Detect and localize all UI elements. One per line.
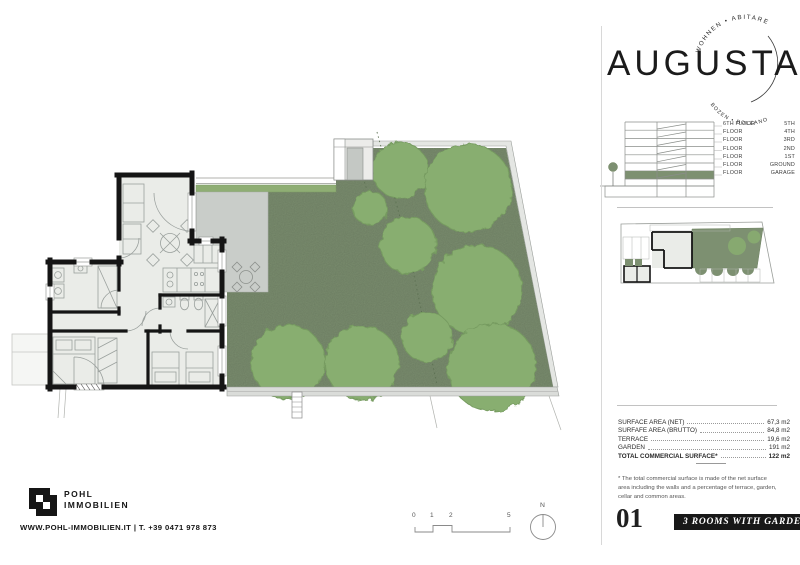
north-label: N (540, 502, 545, 509)
agency-contact: WWW.POHL-IMMOBILIEN.IT | T. +39 0471 978… (20, 523, 217, 532)
hedge-strip (196, 178, 336, 192)
area-footnote: * The total commercial surface is made o… (618, 475, 780, 502)
scale-tick-0: 0 (412, 512, 416, 519)
floor-row: FLOOR2ND (723, 145, 795, 153)
floor-row: FLOOR4TH (723, 128, 795, 136)
area-total-row: TOTAL COMMERCIAL SURFACE*122 m2 (618, 451, 790, 460)
scale-bar (415, 526, 510, 533)
agency-name: POHL IMMOBILIEN (64, 489, 129, 511)
unit-type-badge: 3 ROOMS WITH GARDEN (674, 514, 800, 530)
floor-row: FLOORGROUND (723, 161, 795, 169)
floor-row: FLOOR1ST (723, 153, 795, 161)
floor-row: 6TH FLOOR5TH (723, 120, 795, 128)
apartment (12, 173, 226, 390)
entry-threshold (74, 384, 104, 390)
area-row: SURFAFE AREA (BRUTTO)84,8 m2 (618, 426, 790, 435)
separator-1 (617, 207, 773, 208)
scale-tick-2: 2 (449, 512, 453, 519)
area-row: TERRACE19,6 m2 (618, 434, 790, 443)
building-section-diagram (600, 122, 722, 197)
table-underline (696, 463, 726, 464)
garden-shed (334, 139, 373, 180)
separator-2 (617, 405, 777, 406)
scale-tick-1: 1 (430, 512, 434, 519)
panel-divider (601, 26, 602, 545)
area-row: GARDEN191 m2 (618, 443, 790, 452)
pohl-logo-mosaic (29, 488, 57, 516)
floor-row: FLOOR3RD (723, 136, 795, 144)
logo-wordmark: AUGUSTA (607, 44, 799, 84)
floor-list: 6TH FLOOR5TH FLOOR4TH FLOOR3RD FLOOR2ND … (723, 120, 795, 177)
area-row: SURFACE AREA (NET)67,3 m2 (618, 417, 790, 426)
surface-area-table: SURFACE AREA (NET)67,3 m2 SURFAFE AREA (… (618, 417, 790, 502)
north-arrow (531, 515, 556, 540)
floor-row: FLOORGARAGE (723, 169, 795, 177)
floorplan-sheet: WOHNEN • ABITARE BOZEN • BOLZANO AUGUSTA… (0, 0, 800, 565)
unit-number: 01 (616, 503, 643, 534)
scale-tick-5: 5 (507, 512, 511, 519)
mini-site-plan (621, 222, 774, 283)
